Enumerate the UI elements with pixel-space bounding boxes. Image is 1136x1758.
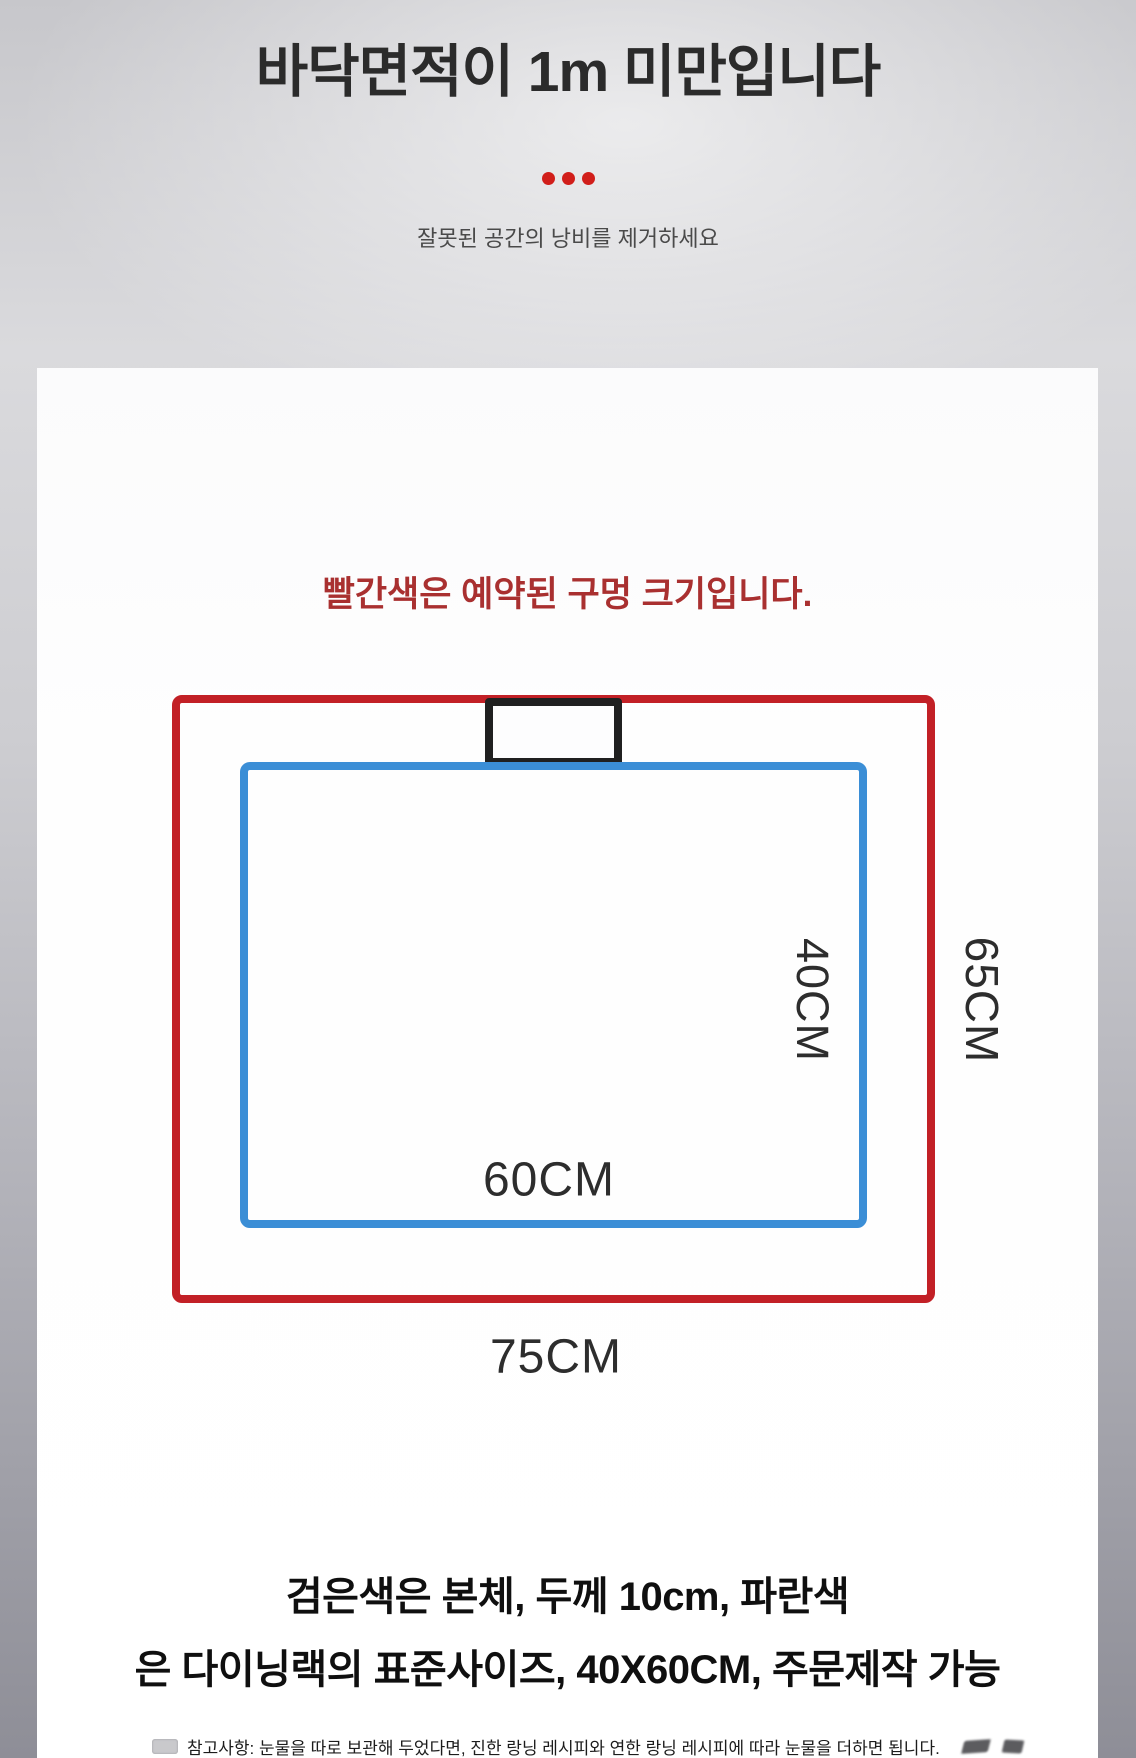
content-card: 빨간색은 예약된 구멍 크기입니다. 40CM 65CM 60CM 75CM 검… [37, 368, 1098, 1758]
note-row: 참고사항: 눈물을 따로 보관해 두었다면, 진한 랑닝 레시피와 연한 랑닝 … [152, 1734, 1082, 1758]
three-dots-divider-icon [0, 172, 1136, 185]
dot-icon [582, 172, 595, 185]
dot-icon [542, 172, 555, 185]
body-unit-rect [485, 698, 622, 766]
smudge-mark [961, 1739, 991, 1754]
description-line-1: 검은색은 본체, 두께 10cm, 파란색 [37, 1574, 1098, 1620]
smudge-marks-icon [963, 1740, 1023, 1753]
dot-icon [562, 172, 575, 185]
inner-width-label: 60CM [483, 1153, 615, 1208]
outer-height-label: 65CM [955, 937, 1009, 1064]
inner-height-label: 40CM [786, 938, 838, 1062]
outer-width-label: 75CM [490, 1330, 622, 1385]
note-text: 참고사항: 눈물을 따로 보관해 두었다면, 진한 랑닝 레시피와 연한 랑닝 … [187, 1734, 940, 1758]
product-description-page: 바닥면적이 1m 미만입니다 잘못된 공간의 낭비를 제거하세요 빨간색은 예약… [0, 0, 1136, 1758]
page-title: 바닥면적이 1m 미만입니다 [0, 40, 1136, 104]
memo-icon [152, 1739, 178, 1754]
page-subtitle: 잘못된 공간의 낭비를 제거하세요 [0, 221, 1136, 253]
description-line-2: 은 다이닝랙의 표준사이즈, 40X60CM, 주문제작 가능 [37, 1647, 1098, 1693]
diagram-caption: 빨간색은 예약된 구멍 크기입니다. [37, 566, 1098, 617]
smudge-mark [1001, 1739, 1024, 1753]
